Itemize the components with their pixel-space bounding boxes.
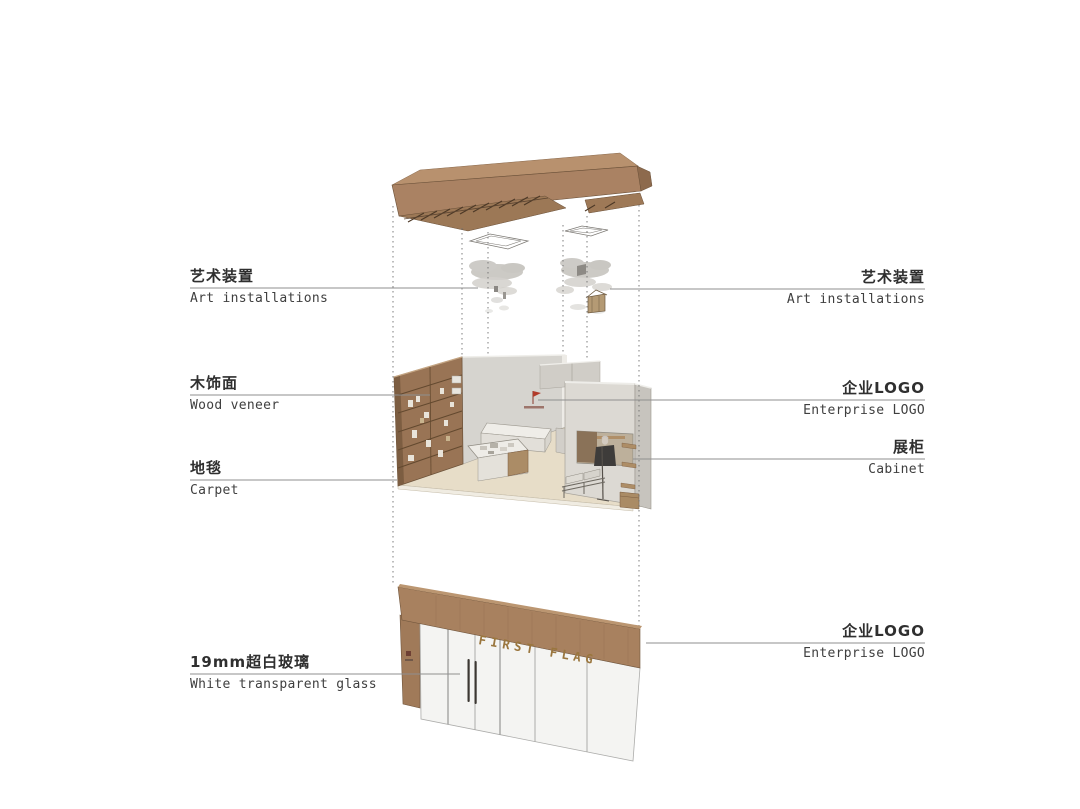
label-en: White transparent glass (190, 677, 377, 693)
logo-caption-smudge (524, 406, 544, 409)
cloud-ornament (577, 264, 586, 276)
label-enterprise-logo-top: 企业LOGO Enterprise LOGO (803, 379, 925, 419)
label-zh: 企业LOGO (803, 622, 925, 641)
stool (620, 492, 639, 509)
ceiling-structure (392, 153, 652, 231)
label-zh: 艺术装置 (190, 267, 328, 286)
label-art-installations-left: 艺术装置 Art installations (190, 267, 328, 307)
wood-veneer-wall (394, 357, 463, 486)
label-en: Enterprise LOGO (803, 403, 925, 419)
label-art-installations-right: 艺术装置 Art installations (787, 268, 925, 308)
room-model (394, 355, 651, 511)
label-zh: 地毯 (190, 459, 239, 478)
label-zh: 木饰面 (190, 374, 279, 393)
storefront-model: FIRST FLAG (398, 584, 642, 761)
label-en: Carpet (190, 483, 239, 499)
cloud-house-ornament (586, 290, 607, 313)
portrait-head (602, 437, 608, 445)
door-handle-right (475, 661, 477, 704)
label-wood-veneer: 木饰面 Wood veneer (190, 374, 279, 414)
label-zh: 艺术装置 (787, 268, 925, 287)
partition-side-face (635, 384, 651, 509)
portrait-body (594, 445, 616, 466)
label-white-glass: 19mm超白玻璃 White transparent glass (190, 653, 377, 693)
art-cloud-right (556, 258, 612, 314)
cloud-ornament (494, 286, 498, 292)
label-en: Enterprise LOGO (803, 646, 925, 662)
label-zh: 19mm超白玻璃 (190, 653, 377, 672)
hanging-panel-left (470, 234, 528, 249)
console-panel (556, 428, 566, 454)
label-en: Wood veneer (190, 398, 279, 414)
exploded-axonometric-diagram: FIRST FLAG 艺术装置 Art installations 木饰面 Wo… (0, 0, 1080, 809)
label-zh: 企业LOGO (803, 379, 925, 398)
wood-column (400, 615, 420, 708)
label-enterprise-logo-bottom: 企业LOGO Enterprise LOGO (803, 622, 925, 662)
inner-partition-wall (565, 382, 651, 509)
portrait-picture (577, 431, 633, 466)
label-en: Cabinet (868, 462, 925, 478)
door-handle-left (468, 659, 470, 702)
hanging-panel-right (565, 226, 608, 236)
label-zh: 展柜 (868, 438, 925, 457)
label-cabinet: 展柜 Cabinet (868, 438, 925, 478)
art-cloud-left (469, 260, 525, 313)
label-en: Art installations (190, 291, 328, 307)
label-carpet: 地毯 Carpet (190, 459, 239, 499)
cloud-ornament (503, 292, 506, 299)
label-en: Art installations (787, 292, 925, 308)
